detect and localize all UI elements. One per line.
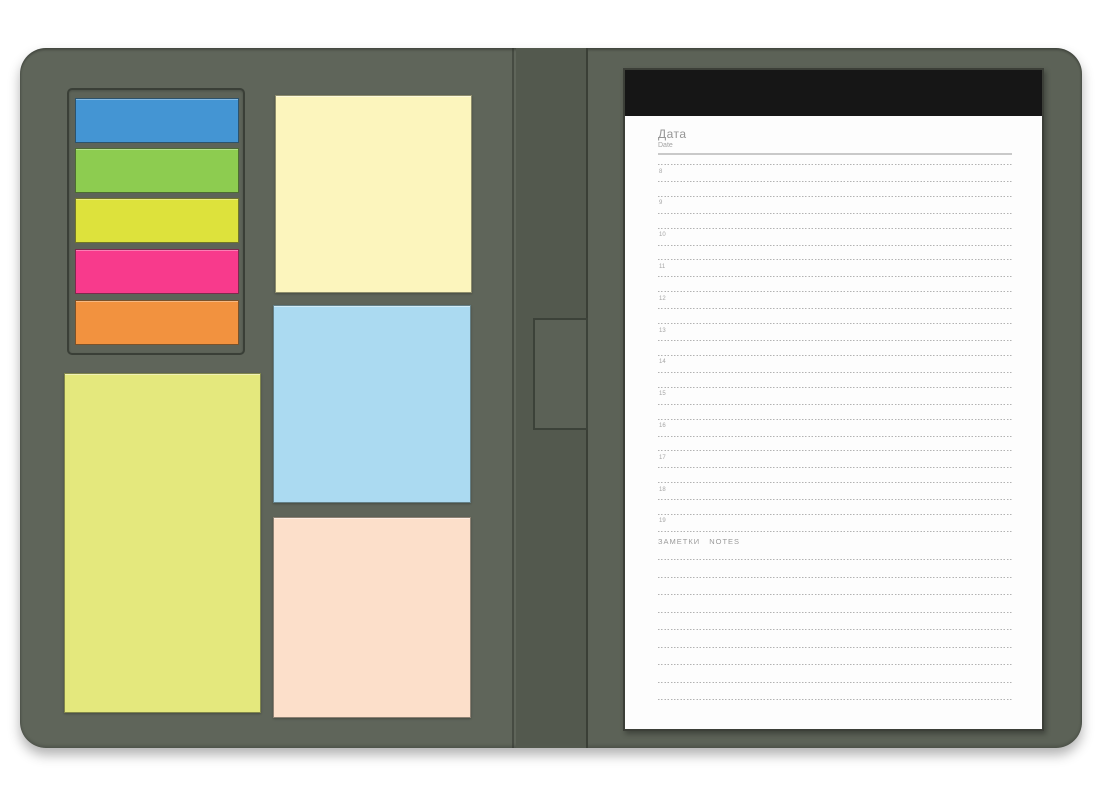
notes-line-row — [658, 594, 1012, 612]
sticky-flags-tray — [67, 88, 245, 355]
ruled-line — [658, 323, 1012, 324]
pen-holder-slot — [533, 318, 588, 430]
hour-label: 18 — [659, 487, 666, 493]
ruled-line — [658, 450, 1012, 451]
ruled-line — [658, 629, 1012, 630]
hour-slot: 10 — [658, 228, 1012, 260]
ruled-line — [658, 245, 1012, 246]
hour-slot: 13 — [658, 323, 1012, 355]
sticky-note-blue — [273, 305, 471, 503]
hour-slot: 17 — [658, 450, 1012, 482]
hour-slot: 9 — [658, 196, 1012, 228]
hour-schedule: 8910111213141516171819 — [658, 164, 1012, 546]
hour-label: 13 — [659, 328, 666, 334]
ruled-line — [658, 682, 1012, 683]
ruled-line — [658, 419, 1012, 420]
notepad-header-band — [625, 70, 1042, 116]
ruled-line — [658, 340, 1012, 341]
ruled-line — [658, 308, 1012, 309]
notes-line-row — [658, 559, 1012, 577]
sticky-note-yellow — [275, 95, 472, 293]
hour-slot: 15 — [658, 387, 1012, 419]
notes-line-row — [658, 664, 1012, 682]
ruled-line — [658, 436, 1012, 437]
sticky-flag-green — [75, 148, 239, 193]
sticky-flag-blue — [75, 98, 239, 143]
hour-label: 19 — [659, 518, 666, 524]
hour-slot: 12 — [658, 291, 1012, 323]
date-label-en: Date — [658, 142, 673, 149]
hour-slot: 16 — [658, 419, 1012, 451]
fold-line — [512, 48, 514, 748]
ruled-line — [658, 213, 1012, 214]
ruled-line — [658, 482, 1012, 483]
ruled-line — [658, 577, 1012, 578]
sticky-flag-orange — [75, 300, 239, 345]
product-photo: Дата Date 8910111213141516171819 ЗАМЕТКИ… — [0, 0, 1100, 800]
ruled-line — [658, 181, 1012, 182]
ruled-line — [658, 514, 1012, 515]
ruled-line — [658, 531, 1012, 532]
date-underline — [658, 153, 1012, 155]
hour-label: 11 — [659, 264, 665, 270]
hour-label: 14 — [659, 359, 666, 365]
organizer-folder: Дата Date 8910111213141516171819 ЗАМЕТКИ… — [20, 48, 1082, 748]
ruled-line — [658, 228, 1012, 229]
ruled-line — [658, 355, 1012, 356]
hour-label: 15 — [659, 391, 666, 397]
ruled-line — [658, 196, 1012, 197]
notes-section-label: ЗАМЕТКИ NOTES — [658, 537, 740, 546]
notes-line-row — [658, 612, 1012, 630]
ruled-line — [658, 699, 1012, 700]
spine-strip — [516, 48, 588, 748]
ruled-line — [658, 612, 1012, 613]
ruled-line — [658, 664, 1012, 665]
sticky-note-peach — [273, 517, 471, 718]
hour-label: 17 — [659, 455, 666, 461]
notes-line-row — [658, 647, 1012, 665]
ruled-line — [658, 387, 1012, 388]
notepad: Дата Date 8910111213141516171819 ЗАМЕТКИ… — [623, 68, 1044, 731]
ruled-line — [658, 259, 1012, 260]
notes-line-row — [658, 577, 1012, 595]
hour-slot: 14 — [658, 355, 1012, 387]
ruled-line — [658, 404, 1012, 405]
notes-line-row — [658, 699, 1012, 717]
hour-slot: 18 — [658, 482, 1012, 514]
ruled-line — [658, 594, 1012, 595]
hour-label: 16 — [659, 423, 666, 429]
ruled-line — [658, 499, 1012, 500]
hour-label: 8 — [659, 169, 662, 175]
ruled-line — [658, 164, 1012, 165]
hour-slot: 11 — [658, 259, 1012, 291]
ruled-line — [658, 291, 1012, 292]
date-label-ru: Дата — [658, 127, 687, 141]
ruled-line — [658, 559, 1012, 560]
notepad-page: Дата Date 8910111213141516171819 ЗАМЕТКИ… — [625, 116, 1042, 729]
ruled-line — [658, 467, 1012, 468]
hour-slot: 8 — [658, 164, 1012, 196]
sticky-flag-pink — [75, 249, 239, 294]
notes-ruled-area — [658, 559, 1012, 717]
notes-line-row — [658, 629, 1012, 647]
hour-label: 10 — [659, 232, 666, 238]
sticky-pad-lime — [64, 373, 261, 713]
notes-line-row — [658, 682, 1012, 700]
ruled-line — [658, 372, 1012, 373]
hour-label: 9 — [659, 200, 662, 206]
hour-label: 12 — [659, 296, 666, 302]
sticky-flag-lime — [75, 198, 239, 243]
ruled-line — [658, 647, 1012, 648]
ruled-line — [658, 276, 1012, 277]
